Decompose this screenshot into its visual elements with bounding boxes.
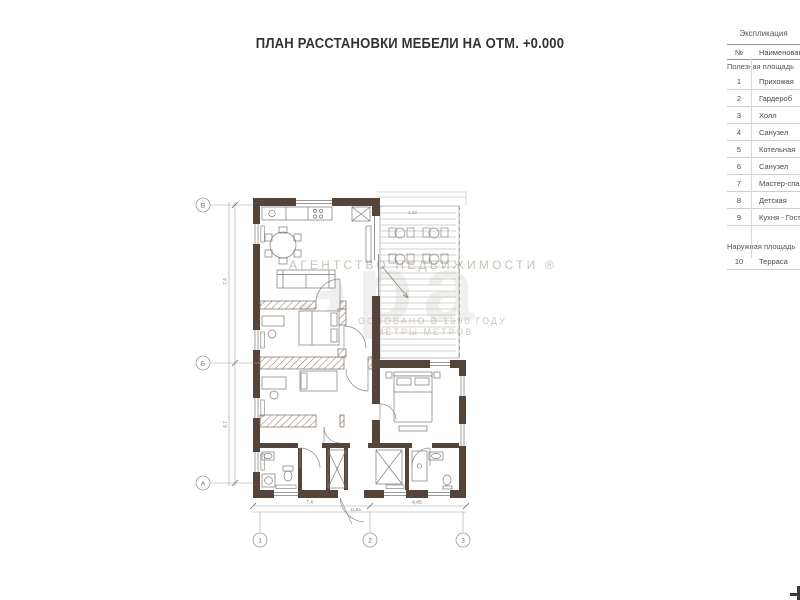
terrace: 1.10 xyxy=(377,190,466,358)
dim-left-bottom: 4,7 xyxy=(223,421,229,428)
bed-left-double xyxy=(299,311,339,345)
sofa xyxy=(277,270,335,288)
axis-bottom-2: 2 xyxy=(368,538,372,545)
axis-left-2: Б xyxy=(201,361,205,368)
explication-row: 10Терраса xyxy=(727,253,800,270)
explication-row: 1Прихожая xyxy=(727,73,800,90)
dim-bottom-left: 7,4 xyxy=(306,500,313,506)
terrace-elevation-label: 1.10 xyxy=(408,210,417,215)
sheet-corner-mark xyxy=(790,586,800,600)
axis-bottom-1: 1 xyxy=(258,538,262,545)
floor-plan-drawing: 1.10 xyxy=(185,180,495,555)
explication-row: 3Холл xyxy=(727,107,800,124)
explication-title: Экспликация xyxy=(727,22,800,45)
axis-bottom-3: 3 xyxy=(461,538,465,545)
explication-col-name: Наименование xyxy=(759,48,800,57)
bathroom-right-fixtures xyxy=(412,451,452,489)
dim-bottom-right: 4,45 xyxy=(412,500,422,506)
desk xyxy=(262,377,286,399)
wardrobe-right xyxy=(376,450,402,484)
floor-plan-sheet: ПЛАН РАССТАНОВКИ МЕБЕЛИ НА ОТМ. +0.000 э… xyxy=(0,0,800,600)
explication-row: 2Гардероб xyxy=(727,90,800,107)
kitchen-counter xyxy=(262,207,332,220)
dressing-table xyxy=(262,316,284,338)
axis-left-1: В xyxy=(201,203,205,210)
bathroom-left-fixtures xyxy=(262,452,293,487)
explication-row: 4Санузел xyxy=(727,124,800,141)
wardrobe-center xyxy=(328,450,346,488)
page-title: ПЛАН РАССТАНОВКИ МЕБЕЛИ НА ОТМ. +0.000 xyxy=(253,36,568,52)
explication-header-row: № Наименование xyxy=(727,45,800,60)
explication-row: 5Котельная xyxy=(727,141,800,158)
explication-body: Полезная площадь1Прихожая2Гардероб3Холл4… xyxy=(727,60,800,270)
explication-row: 6Санузел xyxy=(727,158,800,175)
dining-table xyxy=(265,227,301,264)
tv-stand xyxy=(366,226,371,262)
explication-column-divider xyxy=(751,58,752,258)
dim-bottom-total: 11,85 xyxy=(350,507,361,512)
explication-row: 7Мастер-спальня xyxy=(727,175,800,192)
explication-row: 9Кухня - Гостиная xyxy=(727,209,800,226)
explication-col-num: № xyxy=(727,48,751,57)
explication-section-header: Полезная площадь xyxy=(727,60,800,73)
hall-closet-top xyxy=(352,207,370,221)
bed-single xyxy=(300,371,337,391)
explication-table: Экспликация № Наименование Полезная площ… xyxy=(727,22,800,312)
dim-left-top: 7,4 xyxy=(223,278,229,285)
explication-row: 8Детская xyxy=(727,192,800,209)
partition-walls xyxy=(260,443,459,490)
explication-section-header: Наружная площадь xyxy=(727,240,800,253)
bed-master xyxy=(386,372,440,431)
axis-left-3: А xyxy=(201,481,206,488)
